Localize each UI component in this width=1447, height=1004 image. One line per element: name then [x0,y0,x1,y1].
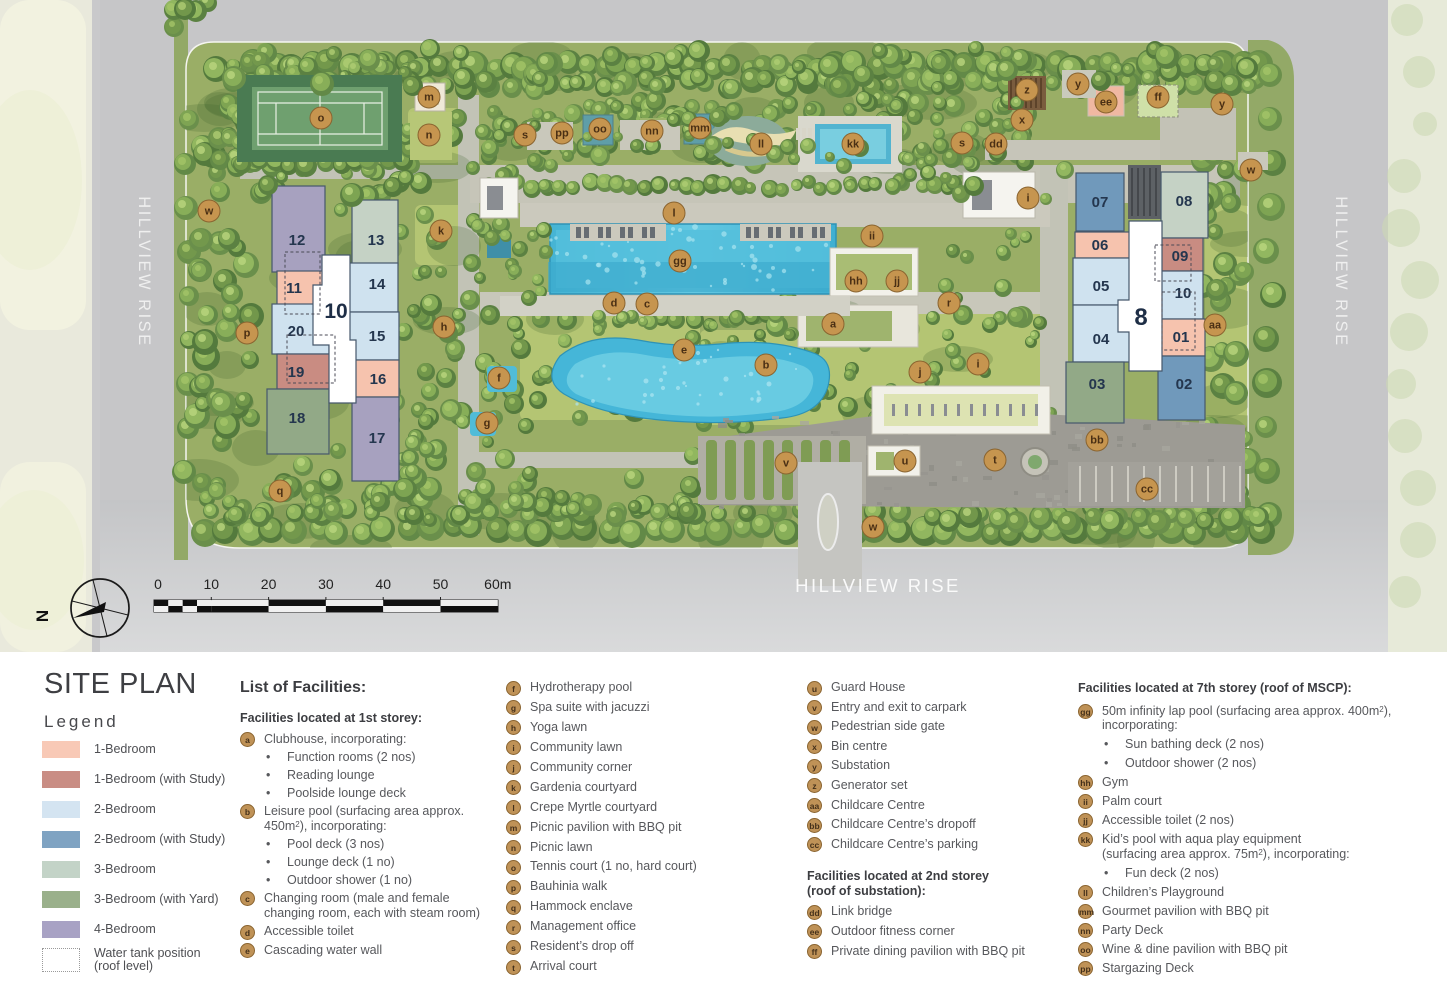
svg-text:09: 09 [1172,248,1189,265]
svg-text:gg: gg [673,256,686,268]
svg-text:kk: kk [847,139,860,151]
svg-text:f: f [497,373,501,385]
svg-text:8: 8 [1134,304,1147,331]
svg-text:p: p [244,328,251,340]
svg-text:k: k [438,226,445,238]
svg-text:ii: ii [869,231,875,243]
svg-text:x: x [1019,115,1026,127]
svg-text:hh: hh [849,276,863,288]
svg-text:20: 20 [288,323,305,340]
svg-text:20: 20 [261,576,277,592]
svg-text:03: 03 [1089,376,1106,393]
svg-text:h: h [441,322,448,334]
svg-text:ll: ll [758,139,764,151]
svg-text:jj: jj [893,276,900,288]
svg-text:HILLVIEW RISE: HILLVIEW RISE [135,196,153,347]
svg-text:y: y [1075,79,1082,91]
svg-text:19: 19 [288,364,305,381]
svg-text:pp: pp [555,128,569,140]
svg-text:04: 04 [1093,331,1110,348]
svg-text:nn: nn [645,126,659,138]
svg-text:08: 08 [1176,193,1193,210]
svg-text:c: c [644,299,650,311]
svg-text:o: o [318,113,325,125]
svg-text:15: 15 [369,328,386,345]
svg-text:s: s [522,130,528,142]
svg-text:s: s [959,138,965,150]
svg-text:13: 13 [368,232,385,249]
svg-text:bb: bb [1090,435,1104,447]
svg-text:16: 16 [370,371,387,388]
svg-text:18: 18 [289,410,306,427]
svg-text:y: y [1219,99,1226,111]
svg-text:ee: ee [1100,97,1112,109]
svg-text:w: w [1246,165,1256,177]
svg-text:cc: cc [1141,484,1153,496]
svg-text:N: N [33,610,52,622]
svg-text:b: b [763,360,770,372]
svg-text:mm: mm [690,123,710,135]
svg-text:n: n [426,130,433,142]
svg-text:v: v [783,458,790,470]
svg-text:r: r [947,298,952,310]
svg-text:l: l [672,208,675,220]
svg-text:j: j [917,367,921,379]
svg-text:a: a [830,319,837,331]
svg-text:q: q [277,486,284,498]
svg-text:12: 12 [289,232,306,249]
svg-text:HILLVIEW RISE: HILLVIEW RISE [795,575,961,596]
svg-text:10: 10 [1175,285,1192,302]
svg-text:t: t [993,455,997,467]
svg-text:0: 0 [154,576,162,592]
svg-text:06: 06 [1092,237,1109,254]
svg-text:e: e [681,345,687,357]
svg-text:30: 30 [318,576,334,592]
svg-text:17: 17 [369,430,386,447]
svg-text:01: 01 [1173,329,1190,346]
svg-text:w: w [204,206,214,218]
svg-text:oo: oo [593,124,607,136]
svg-text:02: 02 [1176,376,1193,393]
svg-text:14: 14 [369,276,386,293]
svg-text:40: 40 [375,576,391,592]
svg-text:ff: ff [1154,92,1162,104]
svg-text:10: 10 [204,576,220,592]
svg-text:60m: 60m [484,576,511,592]
svg-text:i: i [1026,193,1029,205]
svg-text:dd: dd [989,139,1002,151]
svg-text:11: 11 [286,280,302,297]
svg-text:50: 50 [433,576,449,592]
svg-text:g: g [484,418,491,430]
svg-text:d: d [611,298,618,310]
svg-text:05: 05 [1093,278,1110,295]
svg-text:HILLVIEW RISE: HILLVIEW RISE [1332,196,1350,347]
svg-text:i: i [976,359,979,371]
svg-text:w: w [868,522,878,534]
svg-text:aa: aa [1209,320,1222,332]
svg-text:m: m [424,92,434,104]
svg-text:u: u [902,456,909,468]
svg-text:10: 10 [324,300,347,323]
svg-text:z: z [1024,85,1030,97]
svg-text:07: 07 [1092,194,1109,211]
